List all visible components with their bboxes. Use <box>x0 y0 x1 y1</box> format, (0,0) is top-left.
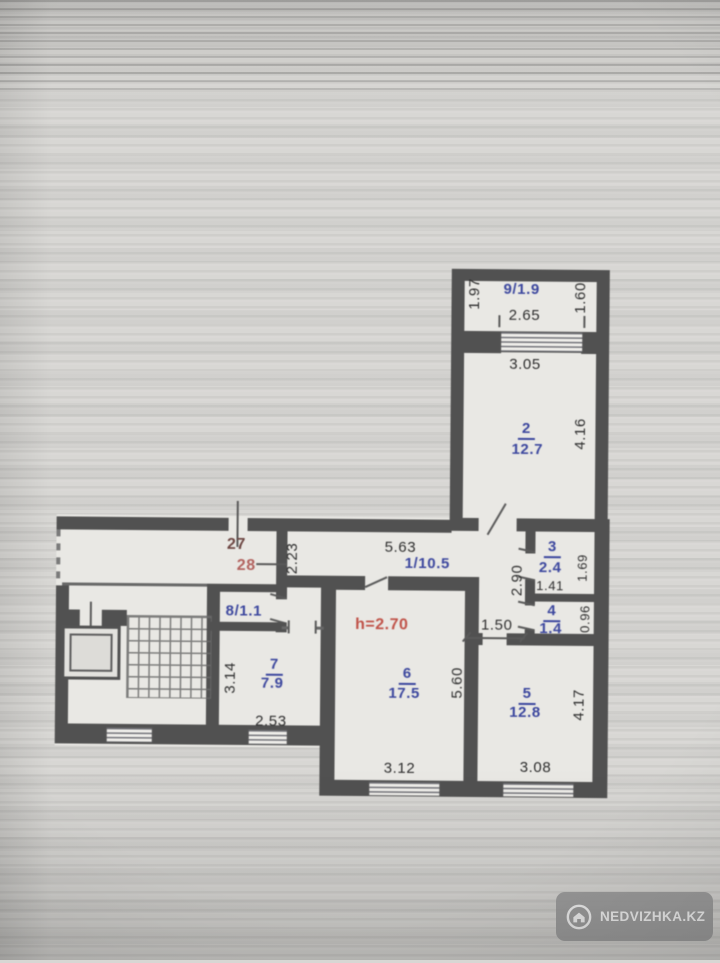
floor-plan-photo: { "plan": { "rooms": { "balcony": { "lab… <box>0 0 720 960</box>
door-opening-room7 <box>290 624 316 631</box>
wall <box>207 622 287 632</box>
room5-area: 12.8 <box>509 704 541 721</box>
dimension-label: 1.60 <box>572 282 589 314</box>
dimension-label: 3.05 <box>509 356 541 373</box>
house-icon <box>566 904 592 930</box>
room-number-text: 6 <box>399 665 416 685</box>
room4-area: 1.4 <box>539 620 562 637</box>
watermark-badge: NEDVIZHKA.KZ <box>556 892 713 941</box>
wall <box>55 723 335 745</box>
dimension-label: 1.41 <box>536 578 564 593</box>
ceiling-height-note: h=2.70 <box>355 616 408 634</box>
apartment-number: 27 <box>227 536 246 554</box>
wall <box>525 593 607 602</box>
dimension-label: 1.97 <box>466 278 483 310</box>
stairs <box>126 615 212 699</box>
door-tick <box>315 621 317 634</box>
apartment-floor-plan: 1.97 2.65 1.60 3.05 4.16 5.63 2.23 2.90 … <box>0 0 720 963</box>
room6-area: 17.5 <box>388 685 420 702</box>
dimension-label: 0.96 <box>577 605 592 633</box>
dimension-label: 1.50 <box>481 617 513 634</box>
dimension-label: 4.16 <box>572 418 589 450</box>
door-tick <box>288 620 290 633</box>
dimension-label: 2.90 <box>508 564 525 596</box>
room6-window <box>368 781 440 797</box>
balcony-label: 9/1.9 <box>503 281 540 298</box>
room3-number: 3 <box>544 538 561 555</box>
dimension-label: 4.17 <box>570 689 587 721</box>
wall <box>321 576 479 591</box>
room-number-text: 7 <box>266 656 283 676</box>
dimension-tick <box>583 316 585 328</box>
wall <box>592 519 609 798</box>
wall <box>450 331 465 531</box>
elevator-cabin <box>69 633 112 671</box>
room-number-text: 2 <box>518 420 535 440</box>
room-number-text: 5 <box>519 685 536 705</box>
stairwell-window <box>106 727 153 743</box>
elevator-shaft <box>61 625 120 680</box>
dimension-label: 2.53 <box>255 713 287 730</box>
room7-window <box>248 729 288 745</box>
room2-number: 2 <box>518 420 535 437</box>
room4-number: 4 <box>543 602 560 619</box>
apartment-number: 28 <box>237 557 256 575</box>
dimension-label: 1.69 <box>575 554 590 582</box>
room3-area: 2.4 <box>539 559 562 576</box>
dimension-label: 3.08 <box>520 759 552 776</box>
dimension-label: 2.23 <box>284 543 301 575</box>
room5-number: 5 <box>519 685 536 702</box>
watermark-text: NEDVIZHKA.KZ <box>600 909 705 924</box>
closet-label: 8/1.1 <box>226 602 263 619</box>
wall-dashed <box>56 529 60 585</box>
hallway-label: 1/10.5 <box>405 555 450 572</box>
room5-window <box>502 782 574 798</box>
room7-number: 7 <box>266 656 283 673</box>
wall <box>595 270 610 532</box>
wall <box>581 332 596 354</box>
room2-area: 12.7 <box>511 441 543 458</box>
dimension-label: 2.65 <box>509 307 541 324</box>
dimension-tick <box>498 315 500 327</box>
dimension-label: 5.63 <box>385 539 417 556</box>
wall <box>451 269 465 333</box>
wall <box>319 576 336 796</box>
dimension-label: 3.12 <box>384 760 416 777</box>
balcony-window <box>500 331 583 353</box>
wall <box>207 584 287 593</box>
room6-number: 6 <box>399 665 416 682</box>
room7-area: 7.9 <box>261 675 284 692</box>
dimension-tick <box>256 563 286 565</box>
dimension-label: 5.60 <box>449 667 466 699</box>
wall <box>450 518 608 532</box>
dimension-label: 3.14 <box>222 662 239 694</box>
room-number-text: 3 <box>544 538 561 558</box>
